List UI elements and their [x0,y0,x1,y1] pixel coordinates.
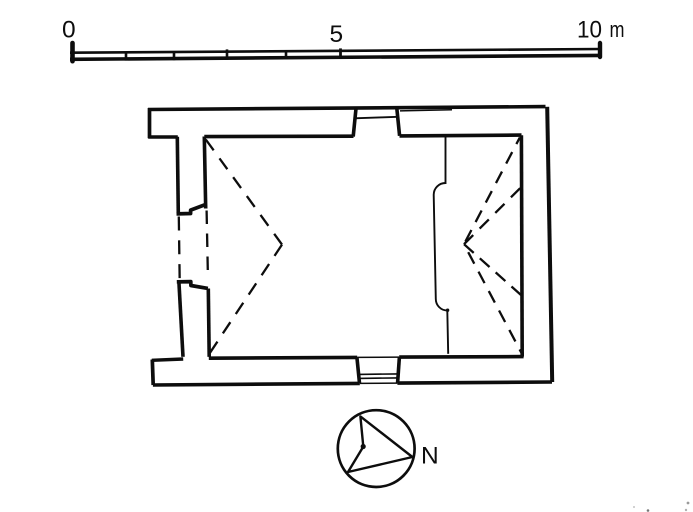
svg-text:m: m [610,17,625,42]
svg-text:N: N [421,443,439,470]
svg-text:0: 0 [62,17,76,44]
svg-text:5: 5 [330,21,344,48]
svg-text:10: 10 [577,16,602,43]
